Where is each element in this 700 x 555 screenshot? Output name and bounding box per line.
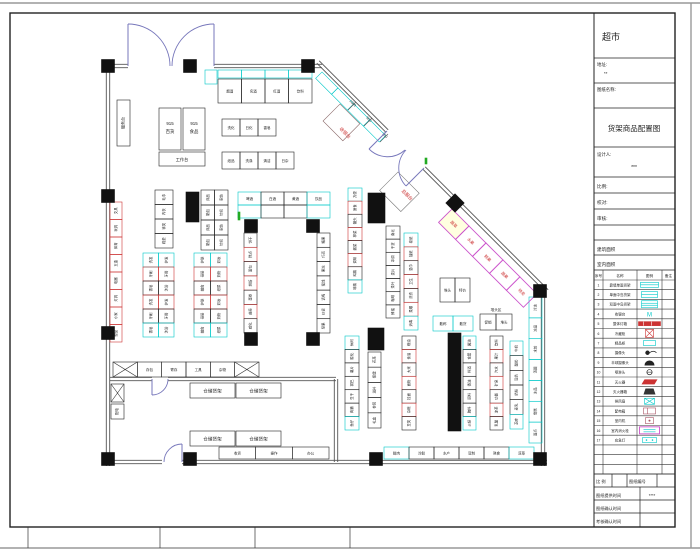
- wall-line: [423, 169, 546, 292]
- shelf-label: 箱包: [205, 209, 210, 216]
- cyan-fan-icon: [645, 398, 655, 404]
- label: M: [647, 312, 652, 318]
- solid-fixture: [186, 192, 199, 222]
- shelf-label: 糕点: [248, 250, 253, 257]
- shelf-label: 洗发: [148, 298, 153, 305]
- rect: [644, 408, 656, 414]
- shelf-label: 冲调: [390, 255, 395, 262]
- shelf-label: 母婴: [199, 312, 204, 319]
- indoor-dot: [649, 420, 651, 422]
- shelf-label: 消毒: [408, 319, 413, 326]
- shelf-label: 榨菜: [352, 230, 357, 237]
- legend-name: 单面中岛货架: [610, 292, 631, 297]
- shelf-label: 名酒: [250, 88, 258, 93]
- legend-no: 11: [597, 380, 601, 384]
- shelf-label: 湿巾: [408, 264, 413, 271]
- solid-fixture: [448, 333, 461, 431]
- shelf-label: 牙刷: [148, 312, 153, 319]
- led-dot: [652, 439, 654, 441]
- shelf-cell: [238, 205, 261, 218]
- shelf-label: 干货: [390, 242, 395, 249]
- shelf-label: 针织: [218, 209, 223, 216]
- shelf-cell: [284, 205, 307, 218]
- shelf-label: 散货: [460, 321, 468, 326]
- legend-header: 名称: [616, 273, 624, 278]
- island-row: 纸品洗涤清洁日杂: [222, 152, 294, 169]
- legend-name: 整体灯箱: [613, 321, 627, 326]
- legend-no: 10: [597, 371, 601, 375]
- shelf-label: 蔬果: [500, 270, 510, 280]
- red-lightbox-icon: [639, 322, 661, 326]
- u-left-run: 饼干糕点面包烘焙蛋卷曲奇威化: [244, 233, 257, 333]
- shelf-label: 调料: [467, 392, 472, 399]
- shelf-label: 工具: [195, 367, 202, 372]
- block-label: 百货: [166, 128, 175, 135]
- shelf-label: 杂物: [219, 367, 226, 372]
- shelf-cell: [218, 70, 242, 78]
- shelf-label: 麦乳: [514, 403, 519, 410]
- shelf-label: 南北: [390, 229, 395, 236]
- area-label: 堆头区: [491, 307, 502, 312]
- shelf-label: 饼干: [248, 236, 253, 243]
- shelf-label: 香皂: [148, 284, 153, 291]
- shelf-label: 散称: [440, 321, 448, 326]
- shelf-label: 奶粉: [216, 270, 221, 277]
- column: [370, 453, 383, 466]
- block-label: 915: [166, 121, 174, 126]
- shelf-label: 雪糕: [533, 408, 538, 415]
- shelf-label: 小家: [113, 312, 118, 319]
- m-text-icon: M: [647, 312, 652, 318]
- cyan-end-shelf-icon: [642, 301, 658, 308]
- u-top-run: 啤酒白酒黄酒饮品: [238, 192, 330, 218]
- footer-scale-label: 比 例: [596, 478, 606, 485]
- shelf-label: 滋补: [372, 386, 377, 393]
- cyan-island-shelf-icon: [642, 292, 658, 298]
- shelf-label: 腌料: [467, 406, 472, 413]
- cyan-emergency-icon: [643, 438, 657, 443]
- address-value: **: [604, 71, 608, 76]
- store-name: 超市: [602, 31, 620, 42]
- bottom-wall-strip: 鲜肉冷鲜水产豆制熟食凉菜: [384, 447, 534, 459]
- shelf-label: 面粉: [406, 379, 411, 386]
- shelf-label: 箱包: [205, 239, 210, 246]
- generated-drawing: 序号名称图例备注1靠墙单面货架2单面中岛货架3双面中岛货架4收银台M5整体灯箱6…: [102, 13, 676, 527]
- column: [307, 333, 320, 346]
- cyan-boutique-icon: [644, 341, 656, 346]
- shelf-label: 洗衣: [408, 291, 413, 298]
- shelf-label: 酸奶: [514, 359, 519, 366]
- shelf-label: 文具: [113, 207, 118, 214]
- rect: [640, 427, 660, 434]
- shelf-label: 罐头: [352, 217, 357, 224]
- shelf-label: 火锅: [467, 419, 472, 426]
- shelf-label: 咖啡: [390, 294, 395, 301]
- green-tick: [238, 212, 240, 220]
- footer-strip: [28, 527, 350, 548]
- shelf-label: 日杂: [282, 158, 290, 163]
- shelf-label: 饮品: [315, 196, 323, 201]
- door-leaf: [369, 131, 387, 149]
- storage-label: 仓储货架: [249, 388, 268, 395]
- shelf-label: 护发: [163, 298, 168, 305]
- shelf-label: 毛巾: [161, 193, 166, 200]
- shelf-label: 红酒: [273, 88, 281, 93]
- shelf-label: 床品: [205, 224, 210, 231]
- rect: [643, 438, 657, 443]
- shelf-label: 家纺: [218, 194, 223, 201]
- legend-no: 17: [597, 438, 601, 442]
- audit-label: 审核:: [597, 215, 607, 222]
- shelf-label: 果冻: [321, 265, 326, 272]
- shelf-label: 鲜果: [483, 253, 493, 263]
- legend-name: 灭火器: [615, 379, 626, 384]
- shelf-label: 牛奶: [514, 344, 519, 351]
- shelf-cell: [242, 70, 266, 78]
- shelf-label: 五金: [113, 259, 118, 266]
- door-swing: [152, 379, 168, 395]
- legend-no: 16: [597, 429, 601, 433]
- shelf-label: 蜂蜜: [390, 307, 395, 314]
- shelf-label: 汽水: [494, 366, 499, 373]
- shelf-label: 膨化: [349, 352, 354, 359]
- shelf-label: 蛋卷: [248, 293, 253, 300]
- dark-box-icon: [644, 389, 656, 395]
- shelf-label: 存包: [146, 367, 153, 372]
- designer-value: ***: [631, 165, 637, 171]
- shelf-label: 柔顺: [408, 305, 413, 312]
- door-swing: [369, 149, 405, 157]
- shelf-label: 锅巴: [349, 379, 354, 386]
- column: [307, 220, 320, 233]
- service-desk-box: [380, 172, 420, 212]
- shelf-label: 啤酒: [246, 196, 253, 201]
- shelf-label: 奶粉: [514, 388, 519, 395]
- column: [245, 333, 258, 346]
- shelf-cell: [261, 205, 284, 218]
- shelf-label: 促销: [485, 319, 493, 324]
- legend-name: 配电箱: [615, 408, 626, 413]
- shelf-label: 冰品: [533, 387, 538, 394]
- shelf-label: 洗发: [148, 256, 153, 263]
- shelf-label: 袜类: [161, 222, 166, 229]
- shelf-label: 护肤: [199, 298, 204, 305]
- check-label: 校对:: [597, 199, 607, 206]
- shelf-label: 烟酒: [226, 88, 233, 93]
- column: [102, 60, 115, 73]
- sprinkler-icon: [647, 370, 652, 375]
- gondola-run: 休闲膨化薯片锅巴豆干肉脯鱼仔: [345, 336, 359, 430]
- shelf-label: 饮料: [297, 88, 305, 93]
- shelf-label: 特价: [459, 287, 467, 292]
- shelf-label: 办公: [307, 450, 314, 455]
- red-indoor-icon: [646, 418, 654, 424]
- gondola-run: 花茶保健滋补参茸礼盒: [368, 352, 381, 428]
- shelf-label: 香皂: [264, 125, 272, 130]
- shelf-label: 味精: [352, 282, 357, 289]
- shelf-label: 水产: [443, 450, 451, 455]
- shelf-label: 调味: [352, 256, 357, 263]
- dimension-label: 950: [365, 116, 372, 123]
- shelf-label: 酱菜: [352, 243, 357, 250]
- service-outline: [380, 172, 420, 212]
- shelf-label: 水果: [466, 236, 476, 246]
- gondola-run: 饮料果汁汽水矿泉功能凉茶乳酸: [490, 336, 503, 430]
- legend-name: 喷淋头: [615, 370, 626, 375]
- shelf-label: 乳酸: [494, 419, 499, 426]
- shelf-label: 凉茶: [494, 406, 499, 413]
- column: [102, 190, 115, 203]
- shelf-label: 玩具: [113, 224, 118, 231]
- shelf-label: 功能: [494, 392, 499, 399]
- shelf-label: 曲奇: [248, 308, 253, 315]
- legend-no: 15: [597, 419, 601, 423]
- footer-no-label: 图纸编号: [629, 478, 646, 485]
- legend-name: 半球摄像头: [611, 360, 629, 365]
- top-wall-shelves: 烟酒名酒红酒饮料: [218, 79, 312, 103]
- left-wall-strip: 文具玩具体育五金电器灯具小家塑品: [110, 202, 122, 342]
- shelf-label: 豆类: [406, 419, 411, 426]
- shelf-label: 床品: [205, 194, 210, 201]
- shelf-cell: [307, 205, 330, 218]
- promo-block: 堆头特价: [440, 278, 470, 302]
- shelf-label: 豆干: [350, 392, 354, 399]
- shelf-label: 麦片: [390, 268, 395, 275]
- shelf-label: 鱼仔: [349, 419, 354, 426]
- footer-provide-label: 图纸提供时间: [596, 492, 621, 499]
- shelf-label: 纸品: [228, 158, 235, 163]
- box-shape: [644, 389, 656, 395]
- shelf-label: 鸡精: [352, 269, 357, 276]
- column: [446, 194, 464, 212]
- shelf-label: 话梅: [321, 293, 326, 300]
- warehouse-row: 存包寄存工具杂物: [113, 362, 259, 377]
- shelf-label: 食醋: [467, 352, 472, 359]
- shelf-label: 参茸: [372, 401, 377, 408]
- drawing-sheet: 超市 地址: ** 图纸名称: 货架商品配置图 设计人: *** 比例: 校对:…: [0, 0, 700, 555]
- gondola-run: 毛巾内衣袜类鞋垫: [155, 190, 173, 248]
- drawing-name-label: 图纸名称:: [597, 86, 616, 93]
- building-area-label: 建筑面积: [597, 246, 616, 253]
- door-swing: [399, 150, 406, 186]
- column: [245, 220, 258, 233]
- shelf-label: 料酒: [467, 366, 472, 373]
- shelf-label: 保健: [372, 371, 377, 378]
- shelf-label: 礼盒: [372, 416, 377, 423]
- shelf-label: 大米: [406, 366, 411, 373]
- gondola-run: 床品家纺箱包针织床品家纺箱包针织: [201, 190, 228, 250]
- shelf-label: 鞋垫: [161, 237, 166, 244]
- shelf-label: 坚果: [321, 322, 326, 329]
- shelf-label: 收货: [234, 450, 241, 455]
- shelf-label: 抽纸: [408, 250, 413, 257]
- shelf-label: 护肤: [199, 256, 204, 263]
- legend-name: 应急灯: [615, 437, 626, 442]
- drawing-title: 货架商品配置图: [608, 123, 661, 133]
- legend-name: 排风扇: [615, 399, 626, 404]
- corner-cyan-box: [205, 70, 217, 84]
- shelf-label: 烘焙: [248, 279, 253, 286]
- shelf-label: 薯片: [349, 366, 354, 373]
- shelf-label: 杂粮: [406, 406, 411, 413]
- shelf-label: 芝麻: [514, 418, 519, 425]
- u-right-run: 糖果巧克果冻蜜饯话梅炒货坚果: [317, 233, 330, 333]
- shelf-label: 巧克: [321, 250, 326, 257]
- legend-no: 14: [597, 409, 601, 413]
- shelf-label: 母婴: [199, 270, 204, 277]
- shelf-label: 灯具: [113, 294, 118, 301]
- shelf-label: 休闲: [349, 339, 354, 346]
- shelf-label: 洗化: [228, 125, 235, 130]
- footer-provide-value: ****: [649, 493, 656, 498]
- shelf-label: 电器: [113, 277, 118, 284]
- column-diamond: [446, 194, 464, 212]
- door-swing: [164, 444, 182, 462]
- shelf-label: 糖果: [321, 236, 326, 243]
- column: [534, 453, 547, 466]
- storage-label: 仓储货架: [203, 436, 222, 443]
- camera-icon: [645, 351, 656, 355]
- gondola-run: 南北干货冲调麦片茶叶咖啡蜂蜜: [386, 226, 400, 318]
- green-tick: [425, 158, 427, 164]
- shelf-label: 日化: [246, 125, 253, 130]
- legend-no: 12: [597, 390, 601, 394]
- block-label: 食品: [190, 128, 199, 135]
- led-dot: [646, 439, 648, 441]
- legend-header: 序号: [595, 273, 603, 278]
- shelf-label: 牙膏: [163, 312, 168, 319]
- shelf-label: 面包: [248, 265, 253, 272]
- power-label: 配电: [114, 408, 119, 415]
- produce-diagonal-run: 蔬菜水果鲜果蔬果特卖: [439, 209, 537, 307]
- shelf-label: 粮油: [406, 339, 411, 346]
- shelf-label: 家纺: [218, 224, 223, 231]
- shelf-label: 特卖: [517, 287, 527, 297]
- shelf-label: 方便: [352, 191, 357, 198]
- shelf-label: 沐浴: [163, 284, 168, 291]
- gondola-run: 牛奶酸奶豆奶奶粉麦乳芝麻: [510, 341, 523, 429]
- checkout-outline: [323, 104, 360, 141]
- shelf-label: 冷鲜: [418, 450, 426, 455]
- door-swing: [128, 24, 170, 66]
- legend-no: 6: [598, 332, 600, 336]
- shelf-label: 彩妆: [216, 298, 221, 305]
- legend-no: 4: [598, 312, 600, 316]
- red-freezer-icon: [646, 329, 654, 337]
- shelf-label: 黄酒: [292, 196, 300, 201]
- shelf-label: 冻品: [533, 324, 538, 331]
- title-block: 超市 地址: ** 图纸名称: 货架商品配置图 设计人: *** 比例: 校对:…: [596, 31, 660, 525]
- gondola-run: 粮油食油大米面粉挂面杂粮豆类: [402, 336, 416, 430]
- dome-shape: [645, 360, 655, 365]
- shelf-label: 洗涤: [246, 158, 253, 163]
- address-label: 地址:: [597, 61, 607, 67]
- promo-block: 促销堆头: [480, 314, 512, 330]
- column: [102, 453, 115, 466]
- shelf-label: 豆奶: [514, 374, 519, 381]
- legend-name: 室内消火栓: [611, 428, 629, 433]
- shelf-label: 白酒: [269, 196, 277, 201]
- shelf-label: 纸尿: [216, 326, 221, 333]
- legend-no: 13: [597, 400, 601, 404]
- shelf-label: 针织: [218, 239, 223, 246]
- door-leaf: [406, 168, 424, 186]
- island-row: 洗化日化香皂: [222, 119, 276, 136]
- shelf-label: 香油: [467, 379, 472, 386]
- solid-fixture: [368, 193, 385, 223]
- shelf-cell: [265, 70, 289, 78]
- cyan-wall-shelf-icon: [641, 282, 659, 287]
- legend-no: 7: [598, 341, 600, 345]
- wall-line: [319, 61, 388, 130]
- camera-arm: [650, 351, 657, 353]
- shelf-label: 清洁: [264, 158, 272, 163]
- shelf-label: 酱油: [467, 339, 472, 346]
- magenta-hydrant-icon: [640, 427, 660, 434]
- rect: [642, 301, 658, 308]
- dimension-label: 1060: [348, 99, 356, 107]
- shelf-label: 护发: [163, 256, 168, 263]
- gondola-run: 酱油食醋料酒香油调料腌料火锅: [463, 336, 476, 430]
- shelf-label: 挂面: [406, 392, 411, 399]
- legend-no: 1: [598, 283, 600, 287]
- legend-no: 3: [598, 303, 600, 307]
- shelf-label: 矿泉: [494, 379, 499, 386]
- red-power-icon: [644, 408, 656, 414]
- red-extinguisher-icon: [642, 379, 658, 384]
- shelf-label: 堆头: [444, 287, 452, 292]
- shelf-label: 冷冻: [533, 303, 538, 310]
- legend-name: 靠墙单面货架: [610, 282, 631, 287]
- shelf-label: 威化: [248, 322, 253, 329]
- legend-name: 室内机: [615, 418, 626, 423]
- shelf-label: 内衣: [161, 208, 166, 215]
- shelf-label: 肉脯: [349, 406, 354, 413]
- legend-name: 摄像头: [615, 350, 626, 355]
- legend-header: 备注: [665, 273, 673, 278]
- shelf-label: 凉菜: [518, 450, 526, 455]
- footer-review-label: 考核确认时间: [596, 518, 621, 525]
- shelf-label: 蜜饯: [321, 279, 326, 286]
- service-box-label: 服务台: [120, 117, 126, 129]
- gondola-run: 洗发护发牙刷牙膏香皂沐浴洗发护发牙刷牙膏香皂沐浴: [143, 253, 174, 337]
- shelf-label: 堆头: [501, 319, 509, 324]
- shelf-label: 辅食: [199, 326, 204, 333]
- shelf-label: 香皂: [148, 326, 153, 333]
- shelf-label: 奶粉: [216, 312, 221, 319]
- shelf-label: 牙膏: [163, 270, 168, 277]
- extinguisher-shape: [642, 379, 658, 384]
- bottom-wall-strip: 收货操作办公: [219, 447, 329, 459]
- promo-block: 散称散货: [433, 316, 473, 331]
- solid-fixture: [368, 328, 384, 350]
- column: [102, 327, 115, 340]
- legend-name: 冷藏柜: [615, 331, 626, 336]
- wall-line: [425, 167, 548, 290]
- shelf-label: 食油: [406, 352, 411, 359]
- storage-label: 仓储货架: [249, 436, 268, 443]
- legend-name: 收银台: [615, 311, 626, 316]
- shelf-label: 汤圆: [533, 366, 538, 373]
- column: [184, 60, 197, 73]
- dome-icon: [645, 360, 655, 365]
- workbench-label: 工作台: [176, 156, 189, 163]
- column: [302, 60, 315, 73]
- legend-name: 灭火器箱: [613, 389, 627, 394]
- storage-label: 仓储货架: [203, 388, 222, 395]
- legend-no: 5: [598, 322, 600, 326]
- shelf-label: 卫生: [408, 278, 413, 285]
